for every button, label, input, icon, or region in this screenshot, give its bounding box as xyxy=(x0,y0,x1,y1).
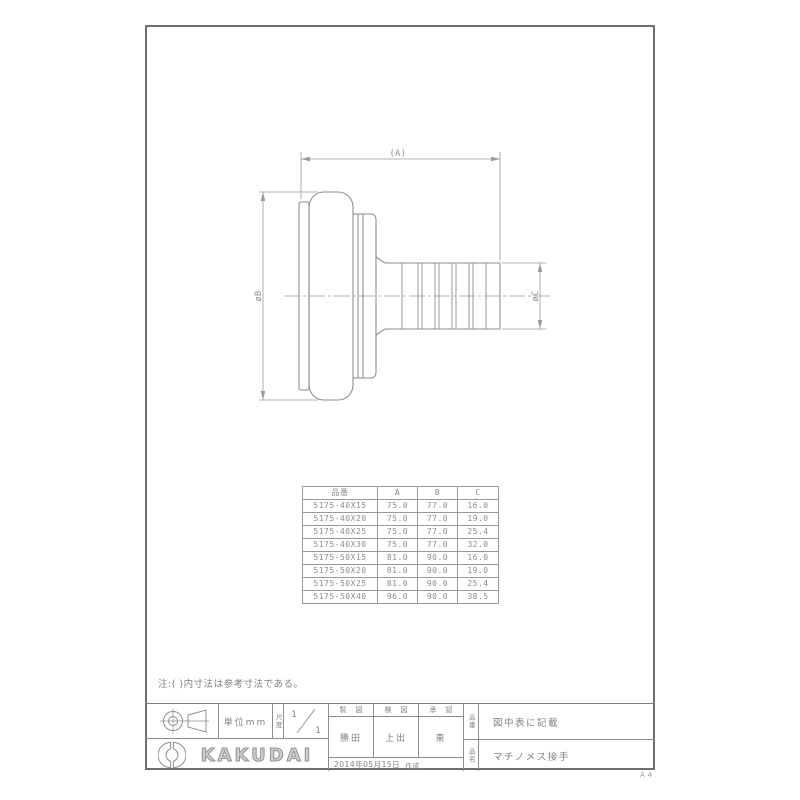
arrowhead xyxy=(538,320,542,329)
cell-code: 5175-40X25 xyxy=(303,526,378,539)
spec-table: 品番 A B C 5175-40X15 75.0 77.0 16.0 5175-… xyxy=(302,486,499,604)
cell-c: 16.0 xyxy=(458,500,499,513)
cell-a: 75.0 xyxy=(378,513,418,526)
scale-value-cell: 1 1 xyxy=(284,704,328,738)
note-text: 注:( )内寸法は参考寸法である。 xyxy=(158,676,304,690)
col-header-b: B xyxy=(418,487,458,500)
approved-header: 承認 xyxy=(419,704,463,716)
part-no-label-cell: 品番 xyxy=(464,704,478,739)
cell-b: 90.0 xyxy=(418,591,458,604)
cell-b: 90.0 xyxy=(418,578,458,591)
kakudai-logo-icon xyxy=(158,741,186,769)
dim-b-label: øB xyxy=(254,290,264,301)
cell-c: 25.4 xyxy=(458,526,499,539)
part-no-value: 図中表に記載 xyxy=(479,704,669,739)
date-cell: 2014年05月15日 作成 xyxy=(329,758,468,771)
cell-a: 75.0 xyxy=(378,539,418,552)
drafted-name: 勝田 xyxy=(329,717,373,757)
cell-a: 81.0 xyxy=(378,552,418,565)
part-no-label: 品番 xyxy=(468,714,475,729)
checked-name: 上出 xyxy=(374,717,418,757)
cell-code: 5175-40X20 xyxy=(303,513,378,526)
cell-a: 81.0 xyxy=(378,565,418,578)
scale-label-cell: 尺度 xyxy=(273,704,283,738)
table-row: 5175-40X25 75.0 77.0 25.4 xyxy=(303,526,499,539)
dimension-a xyxy=(301,152,500,260)
drafted-header: 製図 xyxy=(329,704,373,716)
cell-a: 81.0 xyxy=(378,578,418,591)
cell-code: 5175-50X15 xyxy=(303,552,378,565)
cell-b: 77.0 xyxy=(418,500,458,513)
cell-code: 5175-40X15 xyxy=(303,500,378,513)
cell-code: 5175-50X20 xyxy=(303,565,378,578)
created-suffix: 作成 xyxy=(405,760,420,770)
part-name-label: 品名 xyxy=(468,748,475,763)
drawing-sheet: (A) øB øC 品番 A B C 5175-40X15 xyxy=(0,0,800,800)
cell-c: 16.0 xyxy=(458,552,499,565)
checked-header: 検図 xyxy=(374,704,418,716)
fitting-drawing: (A) øB øC xyxy=(0,0,800,800)
cell-c: 38.5 xyxy=(458,591,499,604)
cell-c: 25.4 xyxy=(458,578,499,591)
table-row: 5175-50X15 81.0 90.0 16.0 xyxy=(303,552,499,565)
cell-a: 96.0 xyxy=(378,591,418,604)
table-row: 5175-40X30 75.0 77.0 32.0 xyxy=(303,539,499,552)
cell-code: 5175-40X30 xyxy=(303,539,378,552)
dim-c-label: øC xyxy=(531,290,541,301)
part-name-value: マチノメス接手 xyxy=(479,740,669,771)
table-header-row: 品番 A B C xyxy=(303,487,499,500)
created-date: 2014年05月15日 xyxy=(334,759,400,770)
arrowhead xyxy=(261,391,265,400)
paper-size-label: A4 xyxy=(640,771,655,779)
table-row: 5175-50X40 96.0 90.0 38.5 xyxy=(303,591,499,604)
table-row: 5175-50X25 81.0 90.0 25.4 xyxy=(303,578,499,591)
cell-c: 19.0 xyxy=(458,565,499,578)
col-header-c: C xyxy=(458,487,499,500)
title-block: 単位mm 尺度 1 1 KAKUDAI 製図 検図 承認 勝田 xyxy=(145,703,655,770)
cell-b: 90.0 xyxy=(418,565,458,578)
scale-numerator: 1 xyxy=(291,710,296,720)
table-row: 5175-40X15 75.0 77.0 16.0 xyxy=(303,500,499,513)
cell-a: 75.0 xyxy=(378,526,418,539)
cell-b: 77.0 xyxy=(418,513,458,526)
arrowhead xyxy=(261,192,265,201)
col-header-code: 品番 xyxy=(303,487,378,500)
cell-a: 75.0 xyxy=(378,500,418,513)
brand-wordmark: KAKUDAI xyxy=(201,745,314,766)
projection-symbol-icon xyxy=(159,708,215,734)
cell-code: 5175-50X40 xyxy=(303,591,378,604)
table-row: 5175-40X20 75.0 77.0 19.0 xyxy=(303,513,499,526)
unit-label: 単位mm xyxy=(219,704,272,738)
cell-b: 77.0 xyxy=(418,526,458,539)
scale-label: 尺度 xyxy=(275,714,282,729)
table-row: 5175-50X20 81.0 90.0 19.0 xyxy=(303,565,499,578)
cell-b: 90.0 xyxy=(418,552,458,565)
cell-c: 19.0 xyxy=(458,513,499,526)
cell-c: 32.0 xyxy=(458,539,499,552)
arrowhead xyxy=(538,263,542,272)
scale-denominator: 1 xyxy=(315,726,320,736)
arrowhead xyxy=(301,157,310,161)
part-name-label-cell: 品名 xyxy=(464,740,478,771)
approved-name: 東 xyxy=(419,717,463,757)
cell-b: 77.0 xyxy=(418,539,458,552)
dim-a-label: (A) xyxy=(390,149,407,159)
brand-wordmark-cell: KAKUDAI xyxy=(189,740,325,770)
col-header-a: A xyxy=(378,487,418,500)
arrowhead xyxy=(491,157,500,161)
scale-fraction: 1 1 xyxy=(284,704,328,738)
cell-code: 5175-50X25 xyxy=(303,578,378,591)
